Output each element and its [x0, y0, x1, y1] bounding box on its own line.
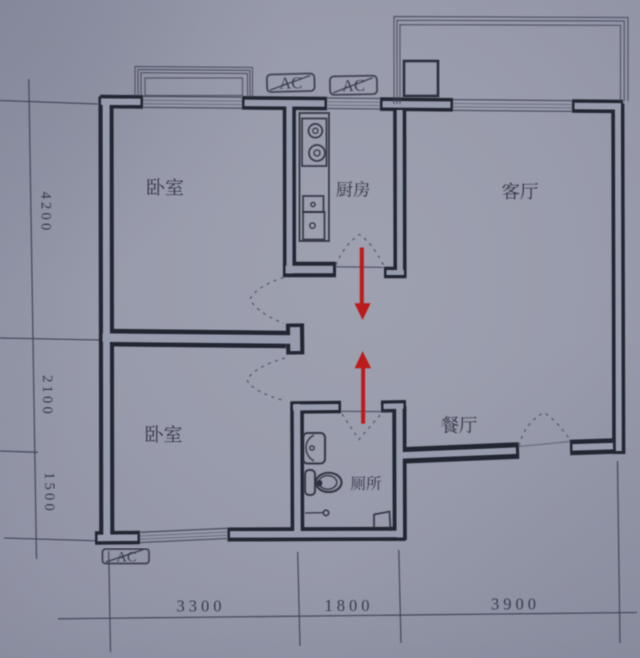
- svg-text:4200: 4200: [37, 192, 53, 234]
- svg-text:AC: AC: [279, 73, 302, 93]
- svg-text:3900: 3900: [491, 594, 540, 613]
- svg-text:1800: 1800: [325, 596, 374, 615]
- svg-text:3300: 3300: [177, 596, 226, 615]
- svg-text:1500: 1500: [41, 472, 57, 514]
- svg-text:AC: AC: [116, 550, 136, 566]
- svg-text:2100: 2100: [39, 375, 55, 417]
- svg-text:AC: AC: [342, 76, 365, 95]
